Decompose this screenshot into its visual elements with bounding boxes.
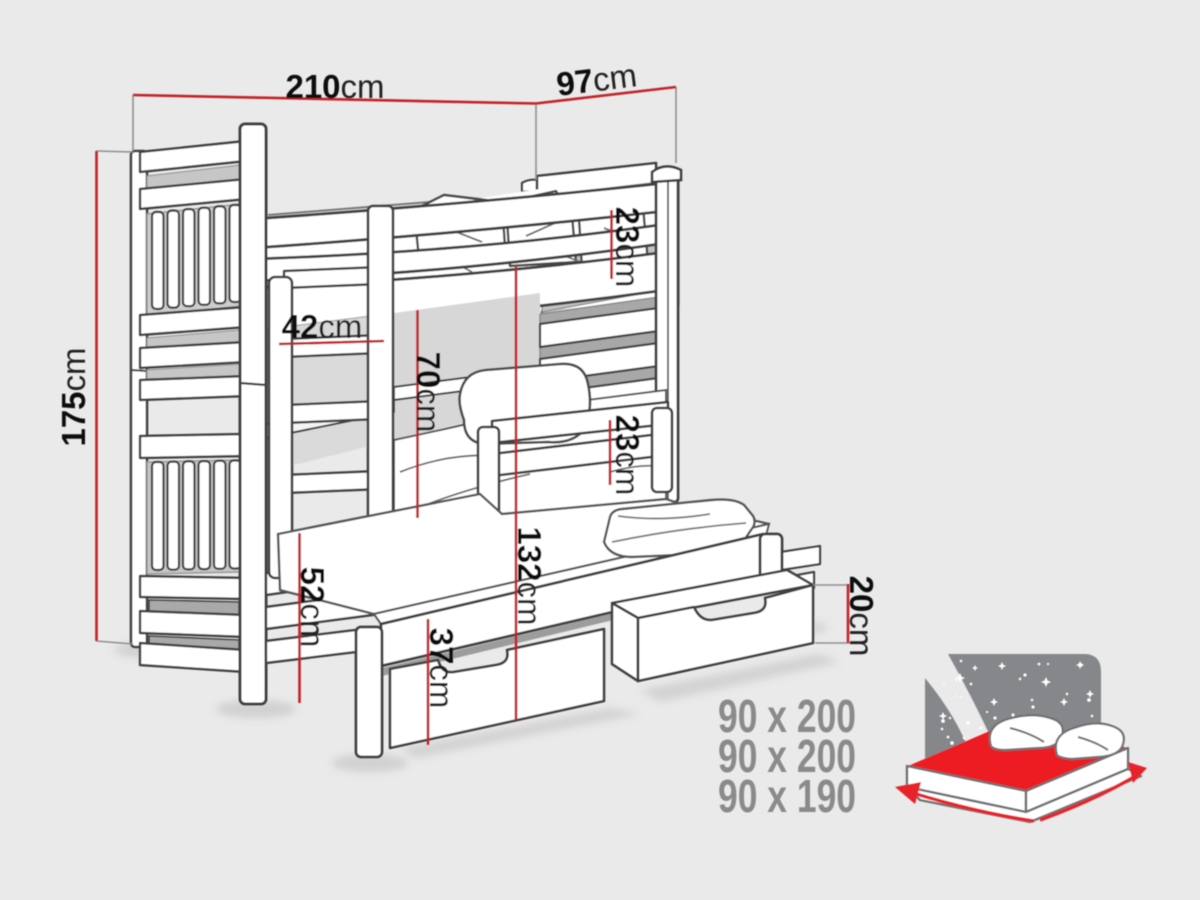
svg-text:175cm: 175cm — [55, 347, 92, 446]
svg-text:37cm: 37cm — [423, 628, 460, 709]
svg-text:23cm: 23cm — [609, 415, 646, 496]
svg-text:90 x 190: 90 x 190 — [718, 770, 856, 822]
svg-text:132cm: 132cm — [511, 526, 548, 625]
svg-text:42cm: 42cm — [282, 308, 363, 345]
svg-text:23cm: 23cm — [609, 207, 646, 288]
svg-text:20cm: 20cm — [843, 576, 880, 657]
svg-text:70cm: 70cm — [410, 352, 447, 433]
svg-text:52cm: 52cm — [294, 567, 331, 648]
svg-text:210cm: 210cm — [285, 68, 384, 105]
